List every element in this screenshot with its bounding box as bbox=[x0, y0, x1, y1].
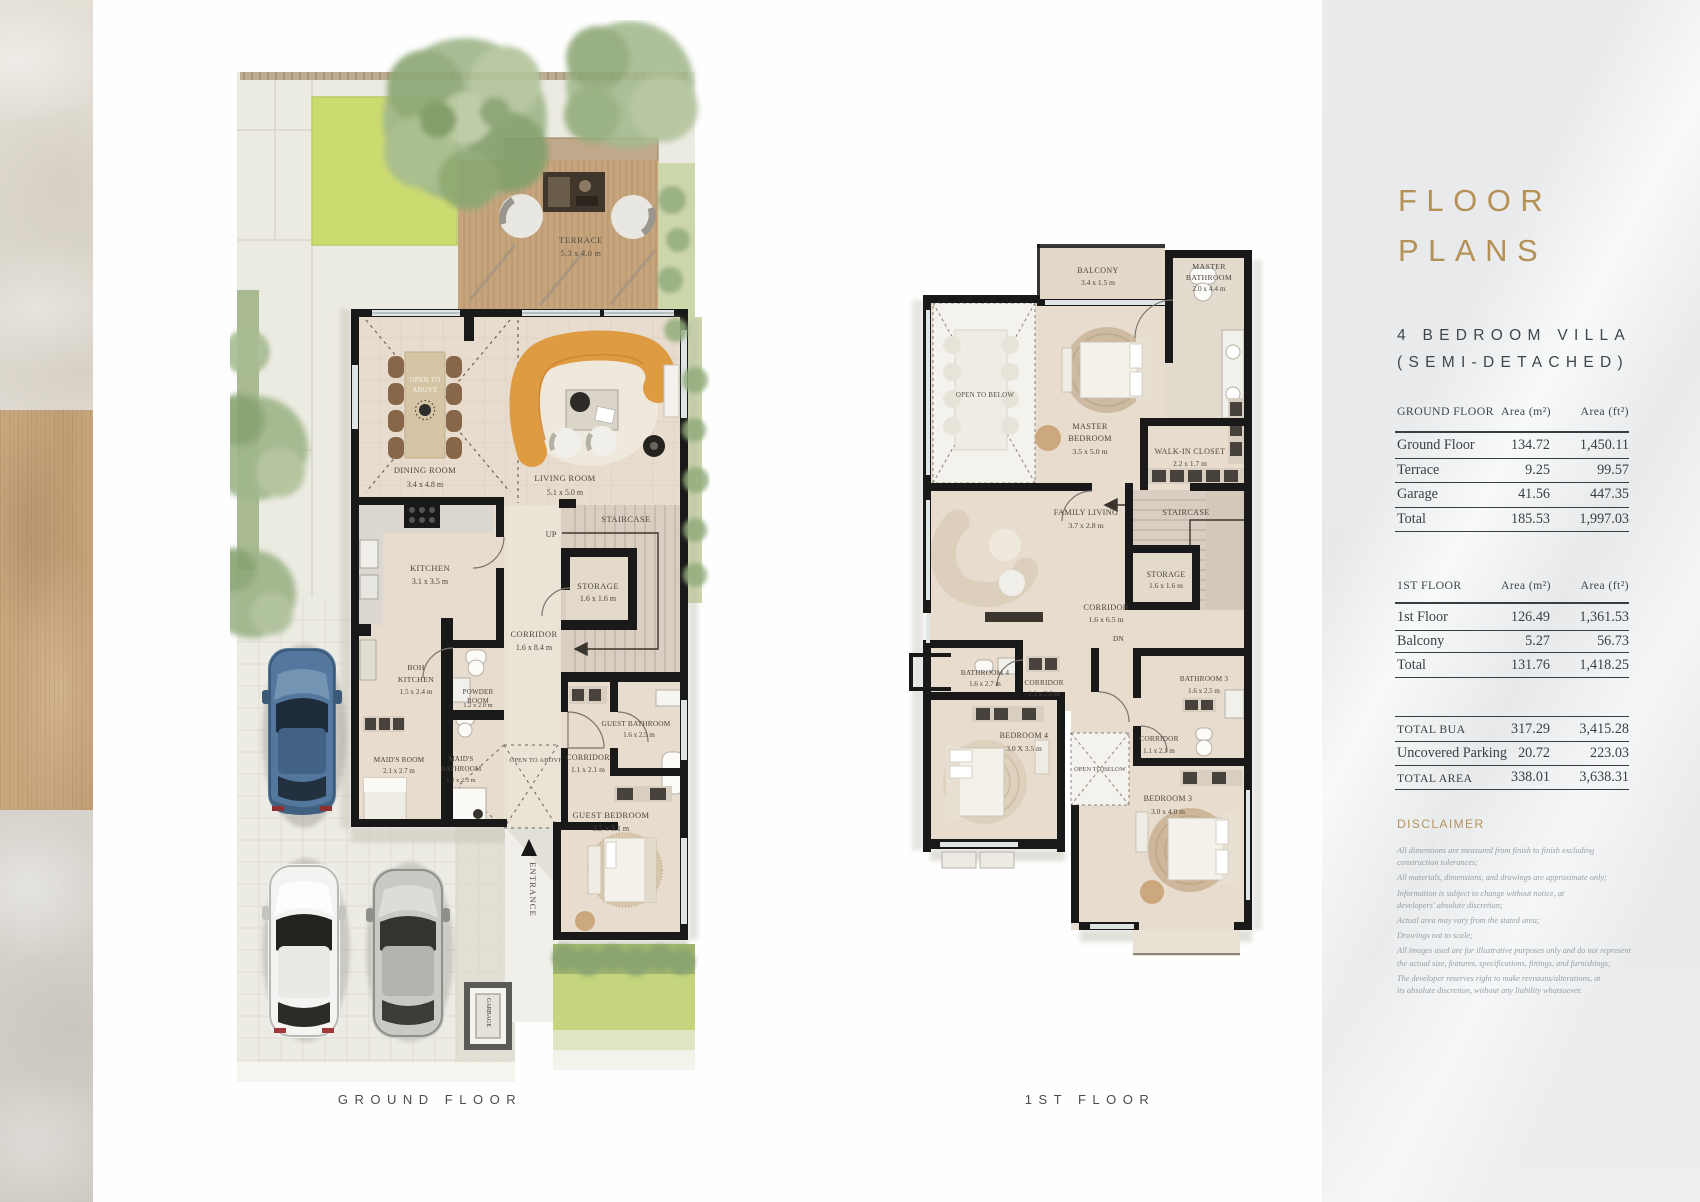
svg-text:3.4 x 1.5 m: 3.4 x 1.5 m bbox=[1081, 278, 1115, 287]
svg-text:DN: DN bbox=[1113, 634, 1124, 643]
svg-text:MAID'S: MAID'S bbox=[448, 755, 473, 763]
svg-text:BEDROOM: BEDROOM bbox=[1068, 434, 1112, 443]
svg-text:3.5 x 3.1 m: 3.5 x 3.1 m bbox=[593, 824, 630, 833]
svg-text:BEDROOM 3: BEDROOM 3 bbox=[1144, 794, 1193, 803]
svg-text:STORAGE: STORAGE bbox=[577, 581, 619, 591]
svg-text:3.7 x 2.8 m: 3.7 x 2.8 m bbox=[1068, 521, 1103, 530]
svg-text:BALCONY: BALCONY bbox=[1077, 266, 1118, 275]
svg-text:1.1 x 2.8 m: 1.1 x 2.8 m bbox=[1028, 690, 1060, 698]
svg-text:5.3 x 4.0 m: 5.3 x 4.0 m bbox=[561, 249, 602, 258]
svg-text:1.6 x 2.7 m: 1.6 x 2.7 m bbox=[969, 680, 1001, 688]
svg-text:WALK-IN CLOSET: WALK-IN CLOSET bbox=[1155, 447, 1226, 456]
svg-text:1.6 x 6.5 m: 1.6 x 6.5 m bbox=[1088, 615, 1123, 624]
svg-text:1.6 x 2.5 m: 1.6 x 2.5 m bbox=[623, 731, 655, 739]
svg-text:KITCHEN: KITCHEN bbox=[398, 675, 434, 684]
svg-text:OPEN TO BELOW: OPEN TO BELOW bbox=[1074, 766, 1127, 773]
svg-text:OPEN TO BELOW: OPEN TO BELOW bbox=[956, 391, 1015, 399]
svg-text:CORRIDOR: CORRIDOR bbox=[510, 629, 557, 639]
svg-text:1.6 x 8.4 m: 1.6 x 8.4 m bbox=[516, 643, 553, 652]
svg-text:TERRACE: TERRACE bbox=[559, 235, 603, 245]
svg-text:ENTRANCE: ENTRANCE bbox=[528, 862, 538, 917]
svg-text:1.1 x 2.1 m: 1.1 x 2.1 m bbox=[1143, 747, 1175, 755]
svg-text:3.0 x 4.0 m: 3.0 x 4.0 m bbox=[1151, 807, 1185, 816]
svg-text:MASTER: MASTER bbox=[1072, 422, 1108, 431]
svg-text:1.6 x 1.6 m: 1.6 x 1.6 m bbox=[1149, 581, 1183, 590]
svg-text:1.1 x 2.1 m: 1.1 x 2.1 m bbox=[571, 765, 605, 774]
svg-text:OPEN TO: OPEN TO bbox=[409, 376, 440, 384]
svg-text:ABOVE: ABOVE bbox=[412, 386, 438, 394]
svg-text:CORRIDOR: CORRIDOR bbox=[566, 753, 610, 762]
svg-text:1.5 x 2.4 m: 1.5 x 2.4 m bbox=[399, 687, 432, 696]
svg-text:BATHROOM: BATHROOM bbox=[1186, 273, 1232, 282]
svg-text:GUEST BEDROOM: GUEST BEDROOM bbox=[572, 810, 649, 820]
svg-text:3.4 x 4.8 m: 3.4 x 4.8 m bbox=[407, 480, 444, 489]
svg-text:MASTER: MASTER bbox=[1192, 262, 1226, 271]
svg-text:BEDROOM 4: BEDROOM 4 bbox=[1000, 731, 1049, 740]
svg-text:2.2 x 1.7 m: 2.2 x 1.7 m bbox=[1173, 459, 1207, 468]
svg-text:GARBAGE: GARBAGE bbox=[485, 998, 491, 1027]
svg-text:CORRIDOR: CORRIDOR bbox=[1024, 678, 1063, 687]
svg-text:POWDER: POWDER bbox=[463, 688, 494, 696]
svg-text:BATHROOM: BATHROOM bbox=[441, 765, 482, 773]
svg-text:OPEN TO ABOVE: OPEN TO ABOVE bbox=[509, 757, 562, 764]
svg-text:1.2 x 2.3 m: 1.2 x 2.3 m bbox=[446, 777, 475, 784]
svg-text:DINING ROOM: DINING ROOM bbox=[394, 465, 456, 475]
svg-text:2.1 x 2.7 m: 2.1 x 2.7 m bbox=[383, 767, 415, 775]
svg-text:MAID'S ROOM: MAID'S ROOM bbox=[374, 755, 425, 764]
svg-text:3.0 X 3.5 m: 3.0 X 3.5 m bbox=[1006, 744, 1042, 753]
svg-text:CORRIDOR: CORRIDOR bbox=[1083, 603, 1128, 612]
svg-text:BATHROOM 3: BATHROOM 3 bbox=[1180, 674, 1229, 683]
svg-text:UP: UP bbox=[546, 529, 557, 539]
svg-text:GUEST BATHROOM: GUEST BATHROOM bbox=[602, 719, 671, 728]
svg-text:1.6 x 2.5 m: 1.6 x 2.5 m bbox=[1188, 687, 1220, 695]
svg-text:3.5 x 5.0 m: 3.5 x 5.0 m bbox=[1072, 447, 1107, 456]
svg-text:STAIRCASE: STAIRCASE bbox=[1162, 508, 1209, 517]
svg-text:KITCHEN: KITCHEN bbox=[410, 563, 450, 573]
svg-text:STORAGE: STORAGE bbox=[1147, 570, 1186, 579]
svg-text:1.2 x 2.0 m: 1.2 x 2.0 m bbox=[463, 702, 492, 709]
svg-text:BATHROOM 4: BATHROOM 4 bbox=[961, 668, 1010, 677]
svg-text:STAIRCASE: STAIRCASE bbox=[601, 514, 650, 524]
svg-text:1.6 x 1.6 m: 1.6 x 1.6 m bbox=[580, 594, 617, 603]
svg-text:CORRIDOR: CORRIDOR bbox=[1139, 734, 1178, 743]
svg-text:5.1 x 5.0 m: 5.1 x 5.0 m bbox=[547, 488, 584, 497]
svg-text:BOH: BOH bbox=[407, 663, 424, 672]
svg-text:LIVING ROOM: LIVING ROOM bbox=[534, 473, 595, 483]
svg-text:2.0 x 4.4 m: 2.0 x 4.4 m bbox=[1192, 284, 1225, 293]
svg-text:FAMILY LIVING: FAMILY LIVING bbox=[1054, 508, 1119, 517]
svg-text:3.1 x 3.5 m: 3.1 x 3.5 m bbox=[412, 577, 449, 586]
